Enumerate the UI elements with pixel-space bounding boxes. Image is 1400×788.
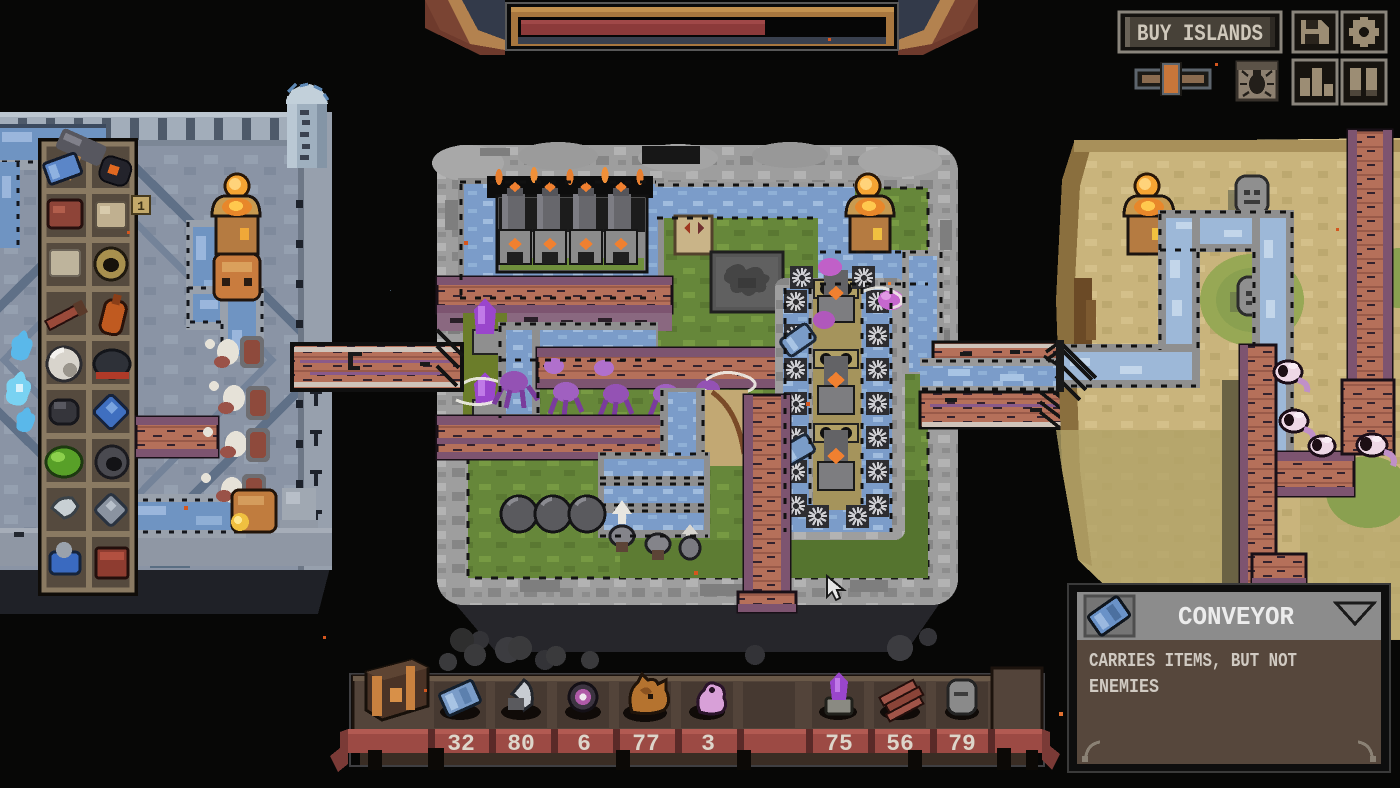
- svg-text:1: 1: [137, 199, 145, 214]
- svg-text:CONVEYOR: CONVEYOR: [1178, 602, 1294, 632]
- svg-text:CARRIES ITEMS, BUT NOT: CARRIES ITEMS, BUT NOT: [1089, 650, 1297, 672]
- svg-text:ENEMIES: ENEMIES: [1089, 676, 1159, 698]
- svg-text:BUY ISLANDS: BUY ISLANDS: [1137, 21, 1263, 47]
